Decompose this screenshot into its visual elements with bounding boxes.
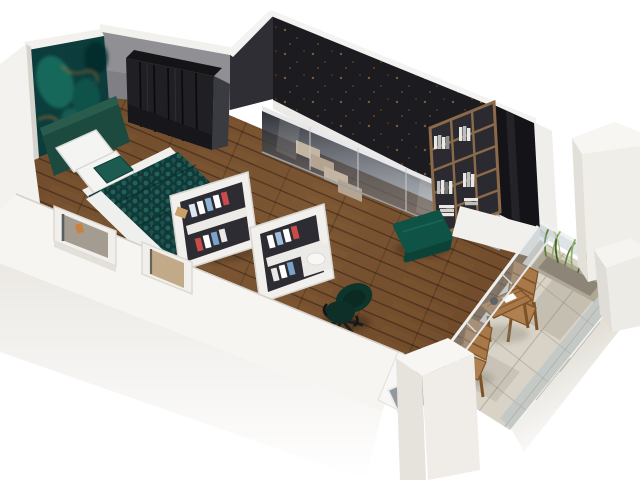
wardrobe-side xyxy=(212,76,230,150)
white-pillar-bottom-center xyxy=(396,338,480,480)
floor-plan-canvas xyxy=(0,0,640,480)
floor-plan-render: 3D isometric cutaway floor-plan render o… xyxy=(0,0,640,480)
